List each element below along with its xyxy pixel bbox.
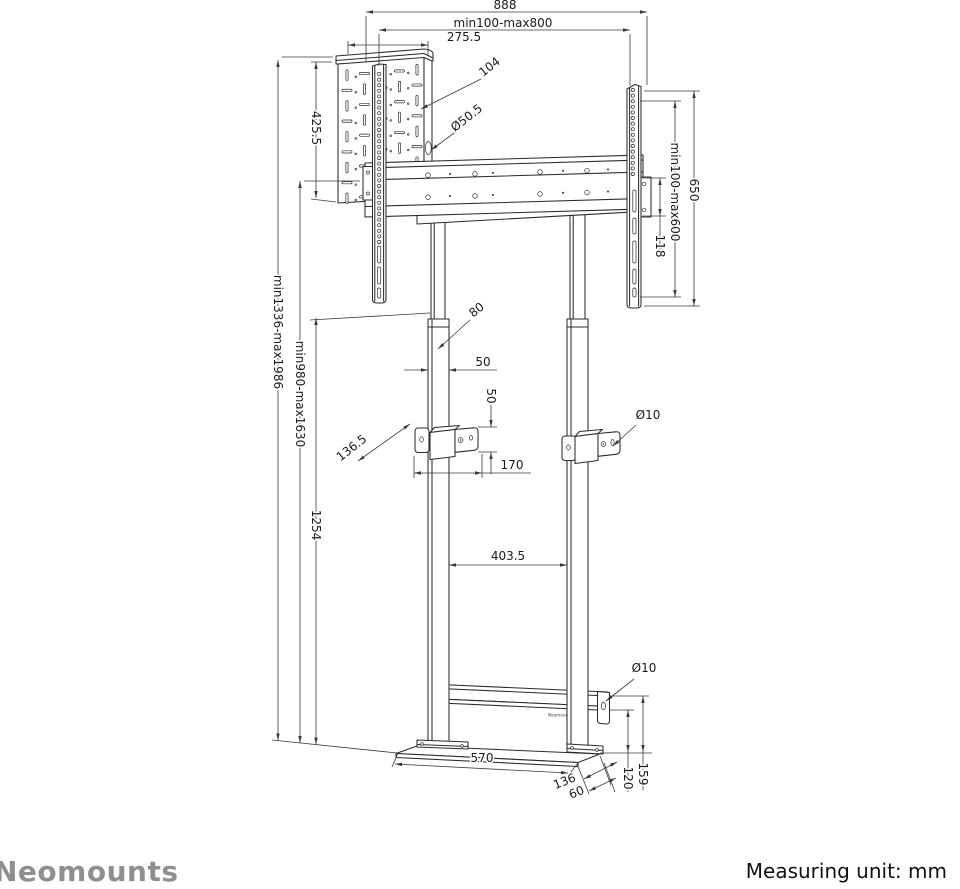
left-vesa-rail: [373, 64, 387, 303]
dim-hole-mid: Ø10: [636, 408, 661, 422]
dim-height-total: min1336-max1986: [271, 275, 285, 389]
dim-col-fixed: 1254: [309, 510, 323, 541]
dim-hole-base: Ø10: [632, 661, 657, 675]
dim-box-height: 425.5: [309, 111, 323, 145]
dim-grommet: Ø50.5: [448, 101, 485, 134]
cable-grommet-hole: [425, 142, 431, 155]
floor-stand-dimension-drawing: Neomounts: [0, 0, 960, 889]
dim-bar-floor: 120: [621, 767, 635, 790]
tv-mount-beam: [365, 155, 643, 217]
left-wall-clamp: [415, 426, 478, 460]
dim-col-width: 50: [475, 355, 490, 369]
dim-col-gap: 403.5: [491, 549, 525, 563]
dim-col-depth: 80: [466, 300, 487, 320]
dim-height-col: min980-max1630: [293, 341, 307, 448]
dim-slot: 104: [476, 54, 503, 79]
dim-vesa-height: min100-max600: [668, 143, 682, 242]
floor-anchor-hole: [601, 702, 605, 709]
technical-drawing-page: Neomounts: [0, 0, 960, 889]
floor-base: [396, 740, 603, 767]
dim-width-box: 275.5: [447, 30, 481, 44]
dim-base-width: 570: [471, 751, 494, 765]
right-vesa-rail: [627, 85, 641, 309]
measuring-unit-label: Measuring unit: mm: [746, 859, 947, 883]
neomounts-logo: Neomounts: [0, 855, 179, 888]
dim-clamp-height: 50: [484, 388, 498, 403]
dim-beam-end: 118: [653, 235, 667, 258]
dim-clamp-width: 170: [501, 458, 524, 472]
outer-columns: [428, 319, 588, 746]
dim-tab-floor: 159: [636, 763, 650, 786]
dim-width-total: 888: [494, 0, 517, 12]
dim-rail-height: 650: [687, 179, 701, 202]
dim-width-vesa: min100-max800: [454, 16, 553, 30]
dim-wall-gap: 136.5: [334, 432, 370, 464]
